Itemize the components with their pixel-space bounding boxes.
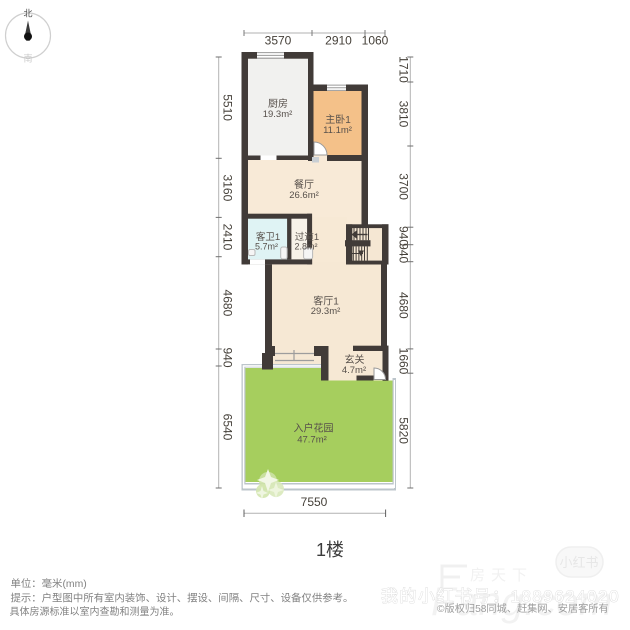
svg-text:1710: 1710	[397, 56, 411, 83]
svg-text:北: 北	[23, 9, 32, 19]
svg-text:940: 940	[397, 243, 411, 263]
svg-text:3700: 3700	[397, 173, 411, 200]
svg-text:2.8m²: 2.8m²	[294, 242, 317, 252]
svg-text:940: 940	[220, 347, 234, 367]
svg-text:6540: 6540	[220, 414, 234, 441]
svg-text:1楼: 1楼	[316, 540, 344, 560]
svg-text:5820: 5820	[397, 417, 411, 444]
svg-text:©版权归58同城、赶集网、安居客所有: ©版权归58同城、赶集网、安居客所有	[437, 602, 609, 615]
svg-text:5510: 5510	[220, 94, 234, 121]
svg-text:主卧1: 主卧1	[325, 113, 351, 126]
svg-text:1060: 1060	[362, 33, 389, 47]
svg-text:3810: 3810	[397, 101, 411, 128]
svg-text:5.7m²: 5.7m²	[255, 242, 278, 252]
svg-text:4.7m²: 4.7m²	[342, 365, 366, 376]
svg-text:11.1m²: 11.1m²	[323, 125, 352, 136]
svg-text:小红书: 小红书	[559, 555, 598, 570]
svg-text:具体房源标准以室内查勘和测量为准。: 具体房源标准以室内查勘和测量为准。	[10, 605, 180, 618]
svg-text:2410: 2410	[220, 224, 234, 251]
svg-text:提示：户型图中所有室内装饰、设计、摆设、间隔、尺寸、设备仅供: 提示：户型图中所有室内装饰、设计、摆设、间隔、尺寸、设备仅供参考。	[11, 592, 354, 605]
svg-text:19.3m²: 19.3m²	[263, 109, 293, 120]
svg-text:26.6m²: 26.6m²	[289, 190, 319, 201]
svg-text:入户花园: 入户花园	[294, 421, 334, 434]
svg-text:4680: 4680	[397, 292, 411, 319]
svg-text:3570: 3570	[265, 33, 292, 47]
svg-text:3160: 3160	[220, 175, 234, 202]
svg-text:7550: 7550	[301, 495, 328, 509]
svg-text:47.7m²: 47.7m²	[297, 435, 327, 446]
svg-text:29.3m²: 29.3m²	[311, 306, 341, 317]
svg-text:2910: 2910	[325, 33, 352, 47]
svg-text:4680: 4680	[220, 290, 234, 317]
svg-text:南: 南	[23, 53, 32, 64]
svg-text:玄关: 玄关	[345, 353, 365, 366]
svg-text:餐厅: 餐厅	[294, 178, 314, 191]
svg-text:单位：毫米(mm): 单位：毫米(mm)	[11, 577, 87, 590]
svg-text:1660: 1660	[397, 348, 411, 375]
